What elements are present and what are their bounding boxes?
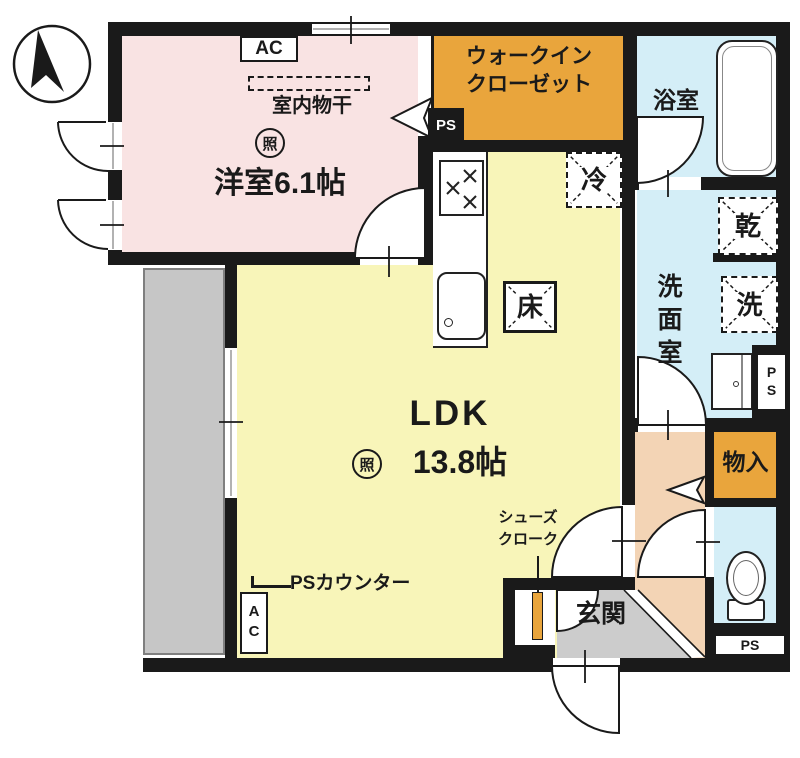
washbasin-handle (733, 381, 739, 387)
bedroom-light-symbol: 照 (255, 128, 285, 158)
top-window-opening (312, 24, 390, 34)
bedroom-ac-label: AC (255, 38, 282, 60)
wic-label-line1: ウォークイン (466, 43, 592, 71)
ps-washroom-text: PS (764, 364, 780, 400)
wall-storage-toilet (705, 498, 790, 507)
north-compass-icon (14, 26, 90, 102)
floor-plan: 冷 乾 洗 床 AC 室内物干 照 洋室6.1帖 ウォークイン クローゼット P… (0, 0, 800, 758)
storage-label-text: 物入 (723, 443, 769, 477)
fridge-symbol-box: 冷 (566, 152, 622, 208)
dryer-symbol: 乾 (734, 213, 762, 239)
shoe-closet-line2: クローク (498, 529, 558, 551)
ldk-label: LDK (385, 394, 515, 434)
ps-counter-label: PSカウンター (290, 568, 440, 594)
bathtub-inner-line (722, 46, 772, 171)
front-door-arc (552, 666, 619, 733)
wic-label: ウォークイン クローゼット (437, 42, 621, 100)
wall-bedroom-bottom (108, 252, 360, 265)
bedroom-window-opening-2 (108, 200, 122, 250)
balcony (143, 268, 225, 655)
bedroom-window-opening-1 (108, 122, 122, 170)
ps-upper-text: PS (436, 117, 456, 134)
fridge-symbol: 冷 (580, 167, 608, 193)
floor-hatch-symbol-box: 床 (503, 281, 557, 333)
washer-symbol-box: 洗 (721, 276, 778, 333)
wall-top (108, 22, 790, 36)
balcony-window-opening (225, 348, 237, 498)
shoe-closet-leader (537, 556, 539, 592)
wic-label-line2: クローゼット (466, 71, 592, 99)
ps-bottom-text: PS (741, 637, 760, 653)
ldk-size-text: 13.8帖 (413, 437, 507, 483)
shoe-closet-label: シューズ クローク (486, 506, 570, 552)
stove-icon (439, 160, 484, 216)
wall-bedroom-right (418, 136, 433, 265)
washroom-label: 洗面室 (648, 238, 688, 406)
bath-label: 浴室 (638, 84, 714, 112)
ldk-size-label: 13.8帖 (385, 440, 535, 480)
ps-counter-leader-h (253, 585, 291, 588)
indoor-drying-text: 室内物干 (272, 89, 352, 118)
washbasin-icon (711, 353, 753, 410)
kitchen-sink-icon (437, 272, 486, 340)
ps-counter-leader-v (251, 576, 254, 588)
stove-burners (441, 162, 486, 218)
bedroom-light-text: 照 (262, 133, 277, 154)
shoe-cabinet (532, 592, 543, 640)
sink-drain (444, 318, 453, 327)
hall-right-door-opening (705, 507, 714, 577)
ldk-light-symbol: 照 (352, 449, 382, 479)
bath-label-text: 浴室 (653, 81, 699, 115)
entrance-label: 玄関 (560, 596, 642, 628)
casement-window-arcs (58, 122, 108, 249)
bedroom-ac-box: AC (240, 36, 298, 62)
wall-bottom (143, 658, 790, 672)
wall-shoe-closet-bottom (503, 645, 555, 658)
indoor-drying-label: 室内物干 (250, 92, 374, 114)
washer-symbol: 洗 (735, 292, 763, 318)
storage-label: 物入 (713, 444, 778, 476)
bath-door-opening (639, 177, 701, 190)
ps-bottom-box: PS (716, 636, 784, 654)
ps-washroom-box: PS (758, 355, 785, 409)
ldk-label-text: LDK (410, 394, 491, 434)
ldk-light-text: 照 (359, 454, 374, 475)
washbasin-divider (741, 355, 743, 408)
floor-hatch-symbol: 床 (516, 294, 544, 320)
ps-upper-box: PS (428, 108, 464, 142)
wall-entrance-top (503, 578, 624, 590)
washroom-label-text: 洗面室 (650, 273, 686, 372)
washroom-door-opening (638, 418, 705, 432)
ldk-hall-door-opening (622, 505, 635, 577)
bedroom-label: 洋室6.1帖 (165, 160, 395, 200)
dryer-symbol-box: 乾 (718, 197, 778, 255)
toilet-bowl-inner (733, 560, 759, 596)
entrance-label-text: 玄関 (576, 594, 626, 630)
shoe-closet-line1: シューズ (498, 507, 557, 529)
bedroom-label-text: 洋室6.1帖 (214, 158, 346, 202)
front-door-opening (553, 658, 620, 672)
ldk-ac-text: AC (246, 603, 263, 643)
ldk-ac-box: AC (240, 592, 268, 654)
ps-counter-text: PSカウンター (290, 568, 410, 595)
